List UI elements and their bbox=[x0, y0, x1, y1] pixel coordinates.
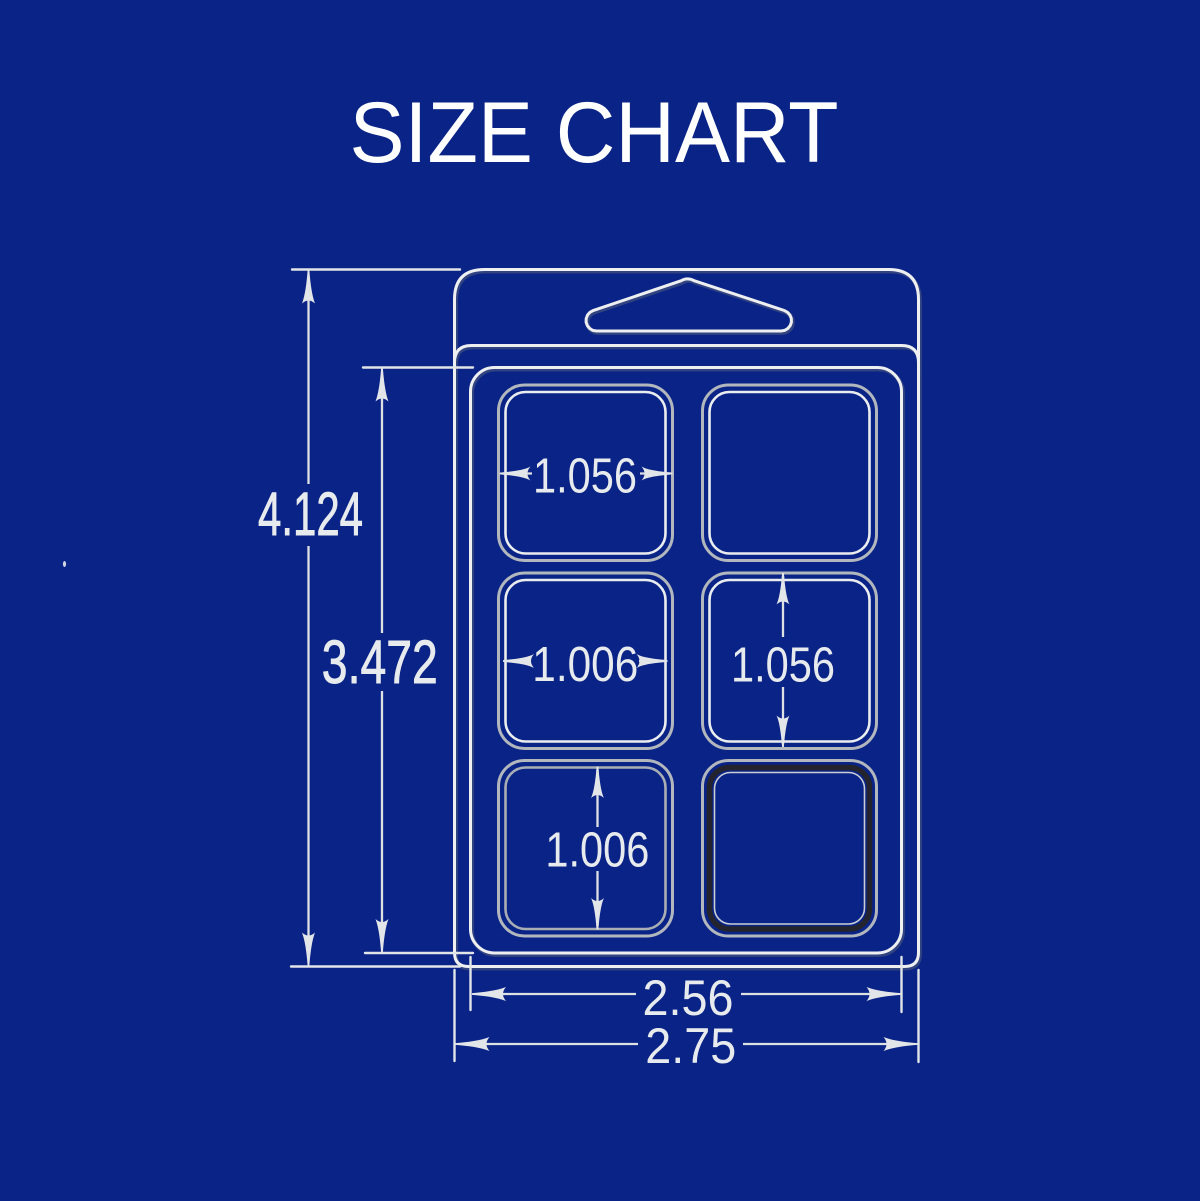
svg-text:1.006: 1.006 bbox=[532, 638, 638, 692]
svg-text:4.124: 4.124 bbox=[258, 480, 363, 548]
svg-text:3.472: 3.472 bbox=[322, 628, 438, 696]
svg-text:2.75: 2.75 bbox=[645, 1018, 736, 1074]
svg-text:SIZE CHART: SIZE CHART bbox=[350, 85, 839, 181]
svg-text:1.056: 1.056 bbox=[533, 450, 637, 504]
svg-text:1.056: 1.056 bbox=[731, 639, 835, 693]
svg-text:1.006: 1.006 bbox=[545, 824, 649, 878]
